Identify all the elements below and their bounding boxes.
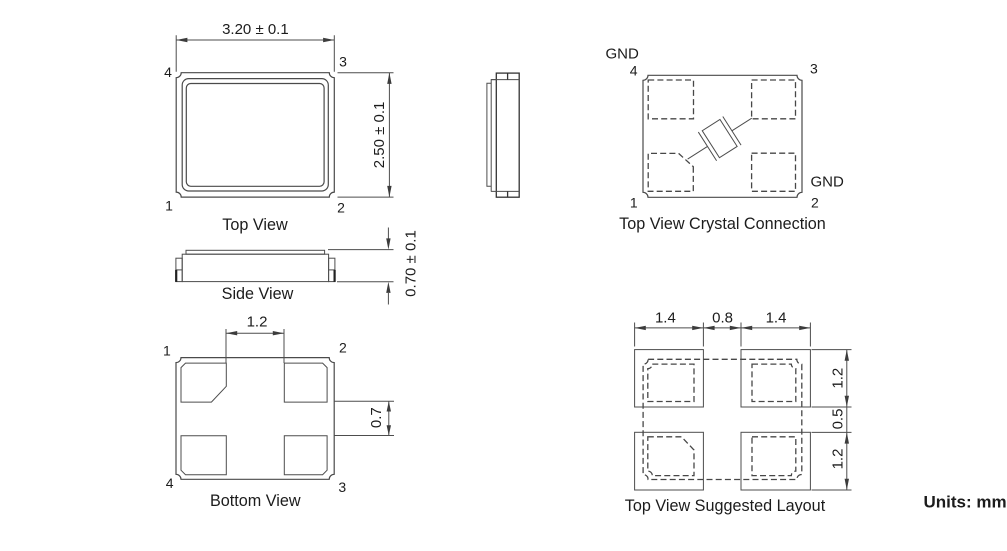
svg-text:4: 4 <box>630 63 638 79</box>
svg-text:3: 3 <box>810 60 818 76</box>
svg-text:2: 2 <box>339 340 347 356</box>
svg-text:Top View Suggested Layout: Top View Suggested Layout <box>625 497 826 515</box>
svg-text:Top View Crystal Connection: Top View Crystal Connection <box>619 215 826 233</box>
svg-text:0.70 ± 0.1: 0.70 ± 0.1 <box>403 230 420 297</box>
svg-text:0.7: 0.7 <box>368 407 385 428</box>
svg-text:1.2: 1.2 <box>830 449 847 470</box>
svg-text:1.4: 1.4 <box>766 310 787 327</box>
svg-text:2: 2 <box>337 200 345 216</box>
svg-text:Bottom View: Bottom View <box>210 492 301 510</box>
svg-text:1: 1 <box>630 195 638 211</box>
svg-text:1.2: 1.2 <box>830 368 847 389</box>
svg-text:0.8: 0.8 <box>712 310 733 327</box>
svg-text:Top View: Top View <box>222 216 288 234</box>
svg-text:1: 1 <box>163 343 171 359</box>
svg-text:4: 4 <box>166 475 174 491</box>
svg-text:GND: GND <box>811 174 845 191</box>
svg-text:1.2: 1.2 <box>247 313 268 330</box>
svg-text:2: 2 <box>811 195 819 211</box>
svg-text:2.50 ± 0.1: 2.50 ± 0.1 <box>371 102 388 169</box>
svg-text:4: 4 <box>164 64 172 80</box>
svg-text:1.4: 1.4 <box>655 310 676 327</box>
svg-text:3: 3 <box>339 54 347 70</box>
svg-text:Side View: Side View <box>222 285 294 303</box>
svg-text:3.20 ± 0.1: 3.20 ± 0.1 <box>222 21 289 38</box>
svg-text:0.5: 0.5 <box>830 409 847 430</box>
svg-text:3: 3 <box>338 479 346 495</box>
svg-text:Units: mm: Units: mm <box>924 493 1007 512</box>
svg-text:GND: GND <box>606 45 640 62</box>
svg-text:1: 1 <box>165 198 173 214</box>
